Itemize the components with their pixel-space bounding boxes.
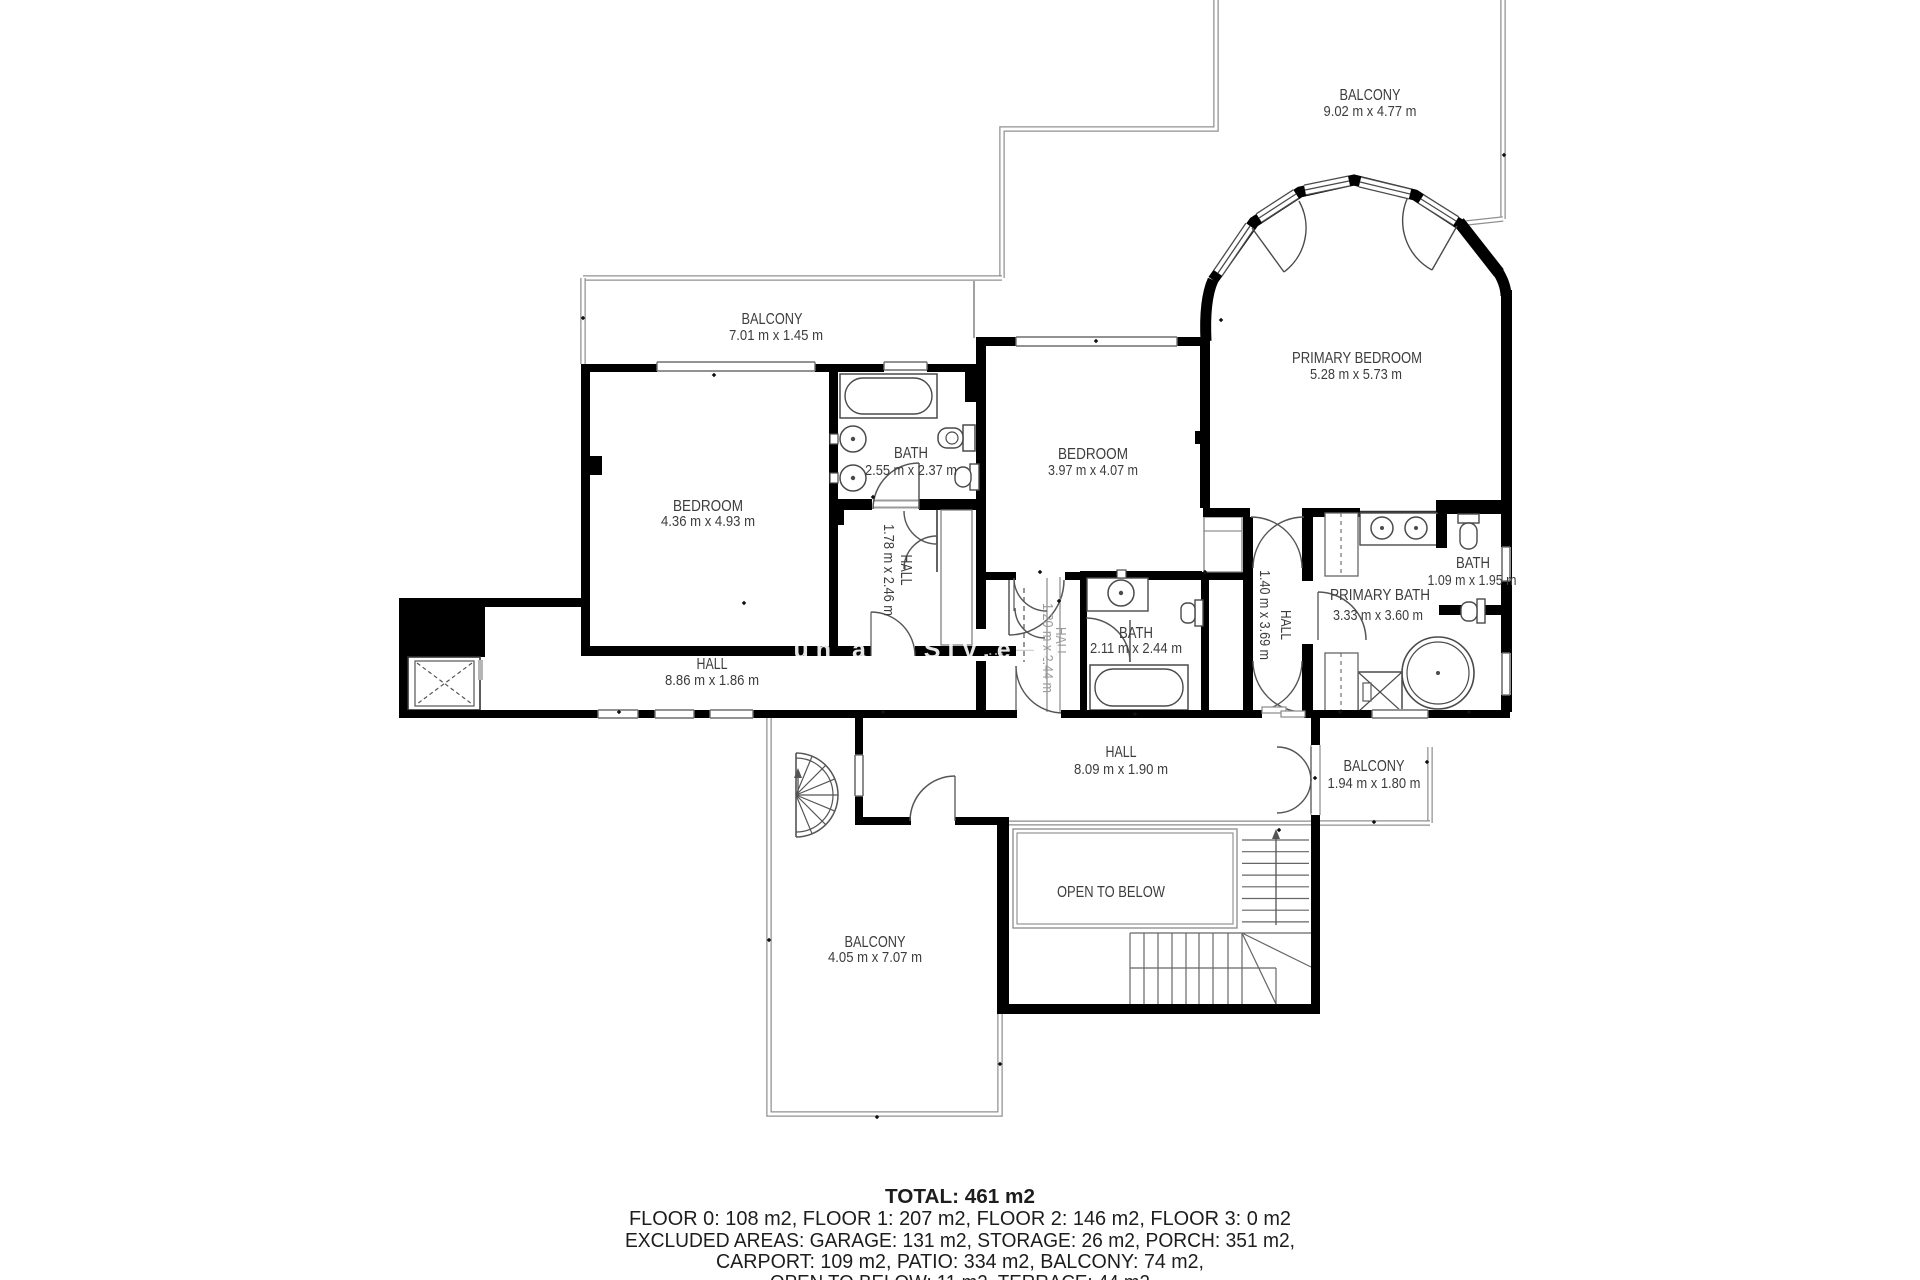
svg-text:8.86 m x 1.86 m: 8.86 m x 1.86 m xyxy=(665,672,759,689)
svg-text:8.09 m x 1.90 m: 8.09 m x 1.90 m xyxy=(1074,761,1168,778)
svg-text:1.09 m x 1.95 m: 1.09 m x 1.95 m xyxy=(1428,572,1517,589)
svg-text:HALL: HALL xyxy=(1106,744,1137,761)
svg-text:PRIMARY BATH: PRIMARY BATH xyxy=(1330,587,1430,604)
svg-text:3.33 m x 3.60 m: 3.33 m x 3.60 m xyxy=(1333,607,1423,624)
svg-text:FLOOR 0: 108 m2, FLOOR 1: 207: FLOOR 0: 108 m2, FLOOR 1: 207 m2, FLOOR … xyxy=(629,1207,1291,1230)
svg-text:1.94 m x 1.80 m: 1.94 m x 1.80 m xyxy=(1328,775,1421,792)
svg-text:BEDROOM: BEDROOM xyxy=(1058,446,1128,463)
svg-text:HALL: HALL xyxy=(897,555,914,586)
svg-text:1.78 m x 2.46 m: 1.78 m x 2.46 m xyxy=(880,524,897,616)
svg-text:4.05 m x 7.07 m: 4.05 m x 7.07 m xyxy=(828,949,922,966)
svg-text:1.40 m x 3.69 m: 1.40 m x 3.69 m xyxy=(1256,570,1272,660)
svg-text:BATH: BATH xyxy=(1456,555,1490,572)
svg-text:5.28 m x 5.73 m: 5.28 m x 5.73 m xyxy=(1310,366,1402,383)
svg-text:OPEN TO BELOW: OPEN TO BELOW xyxy=(1057,884,1165,901)
svg-text:HALL: HALL xyxy=(1277,610,1293,640)
svg-text:EXCLUDED AREAS: GARAGE: 131 m2: EXCLUDED AREAS: GARAGE: 131 m2, STORAGE:… xyxy=(625,1229,1295,1252)
svg-text:BATH: BATH xyxy=(894,445,928,462)
svg-text:BALCONY: BALCONY xyxy=(742,311,803,328)
svg-text:2.55 m x 2.37 m: 2.55 m x 2.37 m xyxy=(865,462,957,479)
svg-text:BALCONY: BALCONY xyxy=(1340,87,1401,104)
svg-text:PRIMARY BEDROOM: PRIMARY BEDROOM xyxy=(1292,350,1422,367)
svg-text:OPEN TO BELOW: 11 m2, TERRACE:: OPEN TO BELOW: 11 m2, TERRACE: 44 m2 xyxy=(770,1271,1150,1280)
svg-text:4.36 m x 4.93 m: 4.36 m x 4.93 m xyxy=(661,513,755,530)
svg-text:CARPORT: 109 m2, PATIO: 334 m2: CARPORT: 109 m2, PATIO: 334 m2, BALCONY:… xyxy=(716,1250,1204,1273)
svg-text:9.02 m x 4.77 m: 9.02 m x 4.77 m xyxy=(1324,103,1417,120)
svg-text:3.97 m x 4.07 m: 3.97 m x 4.07 m xyxy=(1048,462,1138,479)
svg-text:BALCONY: BALCONY xyxy=(1344,758,1405,775)
svg-text:2.11 m x 2.44 m: 2.11 m x 2.44 m xyxy=(1090,640,1182,657)
svg-text:7.01 m x 1.45 m: 7.01 m x 1.45 m xyxy=(729,327,823,344)
svg-text:TOTAL: 461 m2: TOTAL: 461 m2 xyxy=(885,1185,1035,1208)
svg-text:HALL: HALL xyxy=(697,656,728,673)
svg-text:… —: … — xyxy=(987,639,1037,659)
